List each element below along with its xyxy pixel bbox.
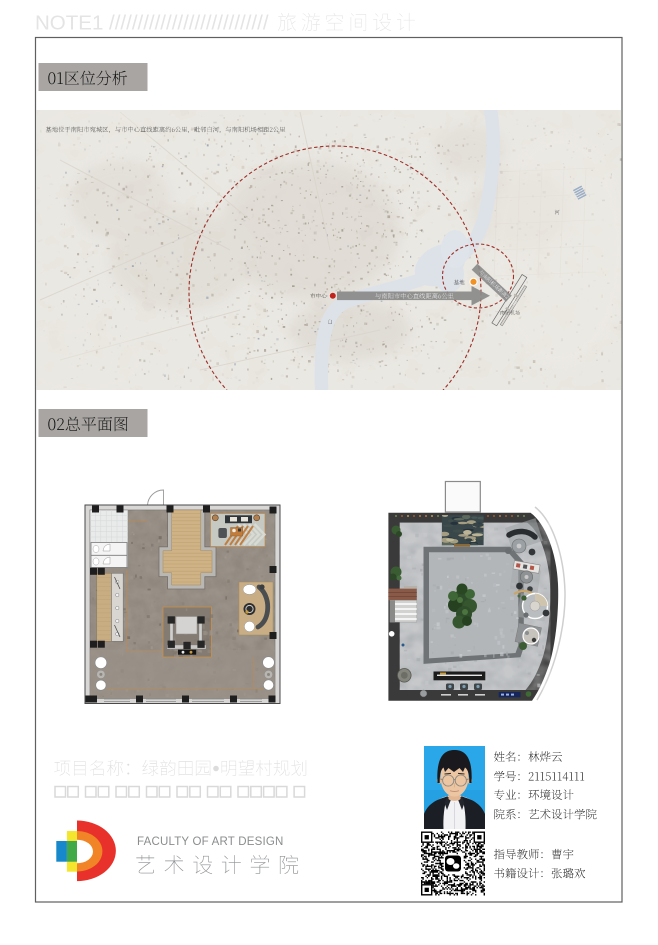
svg-text:FACULTY OF ART DESIGN: FACULTY OF ART DESIGN	[137, 836, 284, 848]
svg-text:NOTE1 ////////////////////////: NOTE1 ////////////////////////////	[35, 12, 269, 35]
